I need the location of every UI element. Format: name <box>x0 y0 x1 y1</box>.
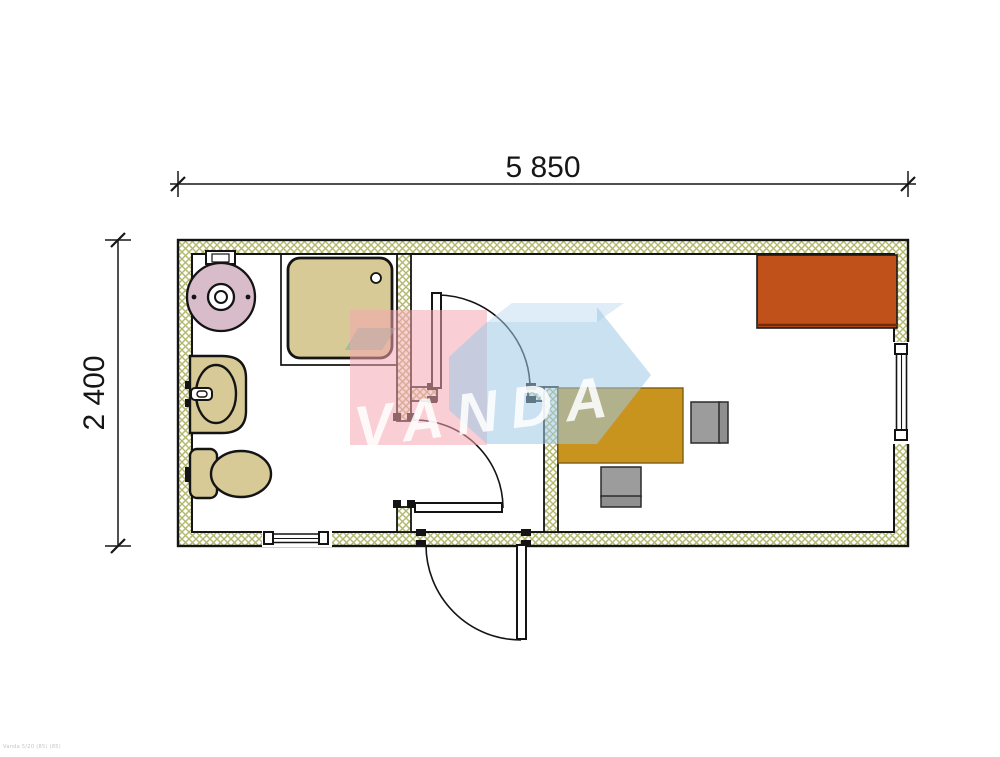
partition-bathroom-lower <box>397 507 411 532</box>
window-right-jamb-top <box>895 344 907 354</box>
door-stop <box>416 540 426 547</box>
entrance-door-swing-arc <box>426 545 521 640</box>
water-heater-bolt-left <box>192 295 197 300</box>
washbasin-wall-mount <box>185 381 190 389</box>
cabinet-body <box>757 255 897 328</box>
toilet <box>185 449 271 498</box>
door-stop <box>416 529 426 536</box>
washbasin-wall-mount <box>185 399 190 407</box>
floor-plan-drawing: 5 850 2 400 <box>0 0 1000 757</box>
water-heater-bolt-right <box>246 295 251 300</box>
dimension-width-label: 5 850 <box>505 151 580 184</box>
shower-drain <box>371 273 381 283</box>
bathroom-door-leaf <box>415 503 502 512</box>
window-right-wall <box>893 342 910 444</box>
office-chair <box>691 402 728 443</box>
office-chair-backrest <box>719 402 728 443</box>
water-heater-ring <box>208 284 234 310</box>
visitor-chair <box>601 467 641 507</box>
window-right-jamb-bottom <box>895 430 907 440</box>
visitor-chair-backrest <box>601 496 641 507</box>
window-bottom-jamb-right <box>319 532 328 544</box>
office-chair-seat <box>691 402 720 443</box>
window-bathroom-bottom <box>262 530 332 547</box>
toilet-bowl <box>211 451 271 497</box>
sideboard-cabinet <box>757 255 897 328</box>
door-stop <box>521 529 531 536</box>
window-bottom-jamb-left <box>264 532 273 544</box>
dimension-height-label: 2 400 <box>78 355 111 430</box>
entrance-door <box>426 545 526 640</box>
washbasin <box>185 356 246 433</box>
visitor-chair-seat <box>601 467 641 497</box>
footer-note: Vanda 5/20 (85) (85) <box>3 744 61 750</box>
washbasin-faucet <box>191 388 212 400</box>
door-stop <box>393 500 401 508</box>
entrance-door-leaf <box>517 545 526 639</box>
floor-plan-canvas: 5 850 2 400 <box>0 0 1000 757</box>
door-stop <box>407 500 415 508</box>
